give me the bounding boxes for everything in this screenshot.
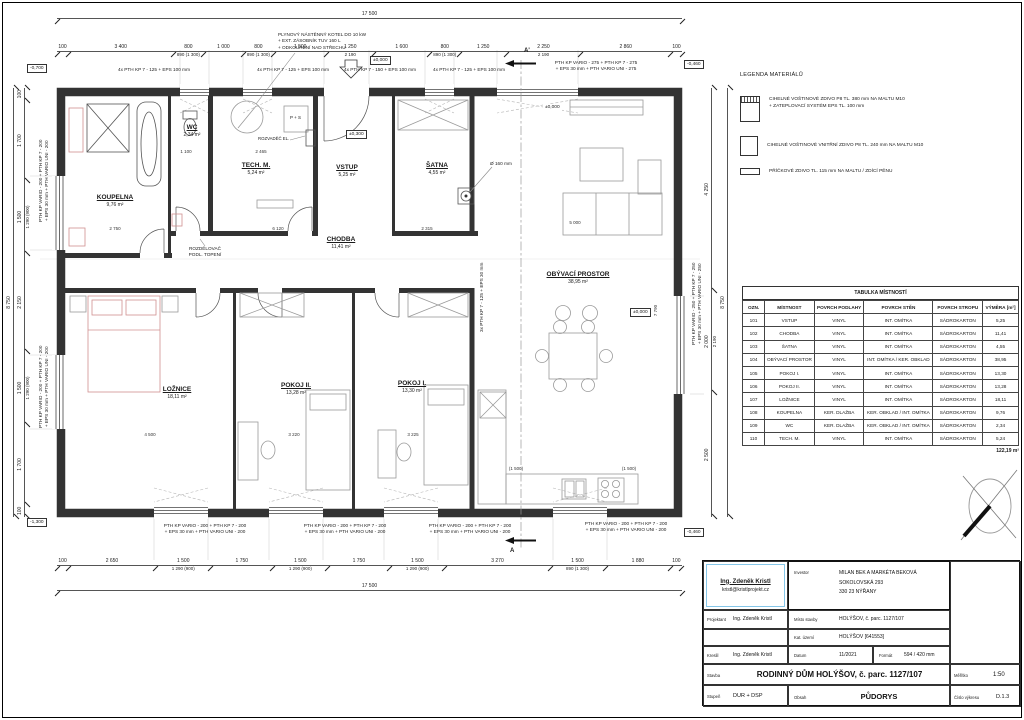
interior-dim: 2 750 — [109, 226, 120, 231]
cislo-vykresu-cell: Číslo výkresu D.1.3 — [950, 685, 1021, 707]
vent-note: Ø 160 mm — [490, 161, 512, 167]
room-table-title: TABULKA MÍSTNOSTÍ — [742, 286, 1019, 300]
room-table-row: 104OBÝVACÍ PROSTORVINYL INT. OMÍTKA / KE… — [743, 353, 1019, 366]
dim-segment: 800890 (1 300) — [430, 43, 460, 52]
wall-note-top-4: 4x PTH KP 7 - 125 + EPS 100 mm — [433, 67, 505, 73]
legend-item: CIHELNÉ VOŠTINOVÉ VNITŘNÍ ZDIVO P8 TL. 2… — [740, 136, 923, 156]
dim-segment: 800890 (1 300) — [243, 43, 273, 52]
dim-segment: 1 5001 290 (900) — [390, 557, 445, 566]
room-table-row: 101VSTUPVINYL INT. OMÍTKASÁDROKARTON5,25 — [743, 314, 1019, 327]
dim-segment: 1 5001 290 (900) — [156, 557, 211, 566]
windows — [56, 90, 684, 514]
room-table-row: 106POKOJ II.VINYL INT. OMÍTKASÁDROKARTON… — [743, 380, 1019, 393]
interior-dim: 3 225 — [407, 432, 418, 437]
top-dimension-total: 17 500 — [57, 10, 682, 19]
room-label-wc: WC2,34 m² — [184, 124, 201, 138]
meritko-cell: Měřítko 1:50 — [950, 664, 1021, 685]
misto-stavby-cell: Místo stavby HOLÝŠOV, č. parc. 1127/107 — [788, 610, 950, 629]
dim-segment: 100 — [57, 43, 68, 52]
room-table-row: 108KOUPELNAKER. DLAŽBA KER. OBKLAD / INT… — [743, 406, 1019, 419]
dim-segment: 1 880 — [605, 557, 671, 566]
stavba-cell: Stavba RODINNÝ DŮM HOLÝŠOV, č. parc. 112… — [703, 664, 950, 685]
left-dimension-row: 100 1 700 1 5001 290 (900) 2 150 1 5001 … — [17, 88, 25, 517]
title-block: Ing. Zdeněk Kristl kristl@kristlprojekt.… — [702, 560, 1020, 706]
dim-segment: 2 650 — [68, 557, 156, 566]
room-table-total: 122,19 m² — [742, 446, 1019, 454]
exterior-wall-symbol — [740, 96, 760, 122]
interior-dim: 2 465 — [255, 149, 266, 154]
extension-lines — [30, 50, 704, 560]
elevation-marker: -0,700 — [27, 64, 47, 73]
ps-label: P + S — [290, 115, 301, 121]
dim-segment: 1 250 — [460, 43, 507, 52]
material-legend: LEGENDA MATERIÁLŮ CIHELNÉ VOŠTINOVÉ ZDIV… — [740, 72, 1018, 78]
room-label-pokoj-ii: POKOJ II.13,28 m² — [281, 382, 311, 396]
dim-segment: 2 2502 190 — [507, 43, 581, 52]
section-label-a: A — [510, 548, 514, 554]
room-table-row: 110TECH. M.VINYL INT. OMÍTKASÁDROKARTON5… — [743, 432, 1019, 445]
room-table-row: 109WCKER. DLAŽBA KER. OBKLAD / INT. OMÍT… — [743, 419, 1019, 432]
interior-dim: 1 100 — [180, 149, 191, 154]
wall-note-interior: 3x PTH KP 7 - 125 + EPS 30 mm — [479, 263, 485, 332]
dim-segment: 2 150 — [16, 253, 25, 351]
stupen-cell: Stupeň DUR + DSP — [703, 685, 788, 707]
partition-wall-symbol — [740, 168, 760, 175]
datum-cell: Datum 11/2021 — [788, 646, 873, 664]
interior-dim: 6 120 — [272, 226, 283, 231]
bathroom-fixtures — [87, 102, 474, 204]
dim-segment: 3 400 — [68, 43, 173, 52]
bottom-dimension-total: 17 500 — [57, 582, 682, 591]
dim-segment: 100 — [671, 557, 682, 566]
legend-item: PŘÍČKOVÉ ZDIVO TL. 115 mm NA MALTU / ZDÍ… — [740, 168, 892, 175]
dim-segment: 100 — [16, 505, 25, 517]
lintel-marks — [154, 99, 607, 502]
dim-segment: 2 500 — [703, 393, 712, 517]
right-dimension-total: 8 750 — [719, 88, 728, 517]
dim-segment: 1 750 — [328, 557, 390, 566]
project-title: RODINNÝ DŮM HOLÝŠOV, č. parc. 1127/107 — [732, 670, 947, 679]
dim-segment: 100 — [57, 557, 68, 566]
empty-cell — [950, 561, 1021, 664]
interior-dim: 5 000 — [569, 220, 580, 225]
dim-segment: 1 700 — [16, 100, 25, 180]
wall-note-bottom-2: PTH KP VARIO - 200 + PTH KP 7 - 200+ EPS… — [304, 523, 386, 536]
dim-segment: 2 860 — [580, 43, 671, 52]
empty-cell — [703, 629, 788, 646]
wall-note-bottom-4: PTH KP VARIO - 200 + PTH KP 7 - 200+ EPS… — [585, 521, 667, 534]
format-cell: Formát 594 / 420 mm — [873, 646, 950, 664]
left-dimension-total: 8 750 — [5, 88, 14, 517]
wall-note-top-right: PTH KP VARIO - 275 + PTH KP 7 - 275+ EPS… — [555, 60, 637, 73]
elevation-marker: -0,460 — [684, 528, 704, 537]
furniture — [70, 100, 662, 504]
wall-note-top-3: 4x PTH KP 7 - 150 + EPS 100 mm — [344, 67, 416, 73]
dim-segment: 1 5001 290 (900) — [16, 181, 25, 253]
room-label-loznice: LOŽNICE18,11 m² — [163, 386, 192, 400]
exterior-walls — [61, 92, 678, 513]
room-table-header: OZN.MÍSTNOST POVRCH PODLAHYPOVRCH STĚN P… — [743, 301, 1019, 314]
room-label-tech-m: TECH. M.5,24 m² — [242, 162, 271, 176]
pink-fixtures — [69, 108, 182, 392]
drawing-title: PŮDORYS — [819, 692, 939, 701]
room-label-koupelna: KOUPELNA9,76 m² — [97, 194, 133, 208]
room-label-satna: ŠATNA4,55 m² — [426, 162, 448, 176]
wall-note-bottom-1: PTH KP VARIO - 200 + PTH KP 7 - 200+ EPS… — [164, 523, 246, 536]
wall-openings — [52, 84, 688, 519]
dim-segment: 1 000 — [204, 43, 244, 52]
wall-note-top-2: 4x PTH KP 7 - 125 + EPS 100 mm — [257, 67, 329, 73]
room-table: TABULKA MÍSTNOSTÍ OZN.MÍSTNOST POVRCH PO… — [742, 286, 1019, 454]
dim-segment: 1 600 — [374, 43, 430, 52]
dim-segment: 1 750 — [211, 557, 273, 566]
rozdelovac-note: ROZDĚLOVAČ PODL. TOPENÍ — [189, 246, 222, 259]
wall-note-left-2: PTH KP VARIO - 200 + PTH KP 7 - 200+ EPS… — [38, 346, 51, 428]
section-label-a-prime: A' — [524, 48, 530, 54]
kreslil-cell: Kreslil Ing. Zdeněk Kristl — [703, 646, 788, 664]
room-label-pokoj-i: POKOJ I.13,30 m² — [398, 380, 426, 394]
elevation-marker: ±0,300 — [346, 130, 367, 139]
designer-cell: Ing. Zdeněk Kristl kristl@kristlprojekt.… — [703, 561, 788, 610]
dim-segment: 1 700 — [16, 424, 25, 504]
designer-name: Ing. Zdeněk Kristl — [720, 579, 770, 585]
room-table-row: 102CHODBAVINYL INT. OMÍTKASÁDROKARTON11,… — [743, 327, 1019, 340]
rozvadec-note: ROZVADĚČ EL. — [258, 136, 289, 142]
boiler-note: PLYNOVÝ NÁSTĚNNÝ KOTEL DO 10 kW + EXT. Z… — [278, 32, 366, 51]
interior-dim: 4 500 — [144, 432, 155, 437]
legend-title: LEGENDA MATERIÁLŮ — [740, 72, 1018, 78]
elevation-marker: ±0,000 — [543, 104, 562, 111]
dim-segment: 1 500890 (1 300) — [550, 557, 605, 566]
elevation-marker: ±0,000 — [370, 56, 391, 65]
projektant-cell: Projektant Ing. Zdeněk Kristl — [703, 610, 788, 629]
top-dimension-row: 100 3 400 800890 (1 300) 1 000 800890 (1… — [57, 44, 682, 52]
designer-email: kristl@kristlprojekt.cz — [722, 587, 769, 593]
dim-segment: 100 — [671, 43, 682, 52]
elevation-marker: ±0,000 — [630, 308, 651, 317]
designer-logo: Ing. Zdeněk Kristl kristl@kristlprojekt.… — [706, 564, 785, 607]
north-arrow-icon — [953, 460, 1024, 552]
wall-note-left-1: PTH KP VARIO - 200 + PTH KP 7 - 200+ EPS… — [38, 140, 51, 222]
room-table-row: 107LOŽNICEVINYL INT. OMÍTKASÁDROKARTON18… — [743, 393, 1019, 406]
floor-plan-drawing — [0, 0, 735, 600]
dim-segment: 2 0002 190 — [703, 291, 712, 393]
section-line — [505, 60, 536, 548]
wall-note-bottom-3: PTH KP VARIO - 200 + PTH KP 7 - 200+ EPS… — [429, 523, 511, 536]
room-label-chodba: CHODBA11,41 m² — [327, 236, 356, 250]
wall-note-right: PTH KP VARIO - 250 + PTH KP 7 - 250+ EPS… — [691, 263, 704, 345]
room-table-row: 103ŠATNAVINYL INT. OMÍTKASÁDROKARTON4,55 — [743, 340, 1019, 353]
kat-uzemi-cell: Kat. území HOLÝŠOV [641553] — [788, 629, 950, 646]
interior-dim: 2 315 — [421, 226, 432, 231]
right-dimension-row: 2 500 2 0002 190 4 250 — [704, 88, 712, 517]
room-label-obyvaci-prostor: OBÝVACÍ PROSTOR38,95 m² — [547, 271, 610, 285]
dim-segment: 1 5001 290 (900) — [16, 352, 25, 424]
interior-dim: 3 220 — [288, 432, 299, 437]
dim-segment: 800890 (1 300) — [173, 43, 203, 52]
investor-cell: Investor MILAN BEK A MARKÉTA BEKOVÁ SOKO… — [788, 561, 950, 610]
dim-segment: 1 5001 290 (900) — [273, 557, 328, 566]
interior-dim: (1 500) — [509, 466, 523, 471]
obsah-cell: Obsah PŮDORYS — [788, 685, 950, 707]
interior-dim: (1 500) — [622, 466, 636, 471]
leader-lines — [200, 53, 492, 246]
legend-item: CIHELNÉ VOŠTINOVÉ ZDIVO P8 TL. 380 mm NA… — [740, 96, 905, 122]
bottom-dimension-row: 100 2 650 1 5001 290 (900) 1 750 1 5001 … — [57, 558, 682, 566]
dim-segment: 3 270 — [445, 557, 550, 566]
room-label-vstup: VSTUP5,25 m² — [336, 164, 358, 178]
elevation-marker: -1,300 — [27, 518, 47, 527]
wall-note-top-1: 4x PTH KP 7 - 125 + EPS 100 mm — [118, 67, 190, 73]
interior-wall-symbol — [740, 136, 758, 156]
elevation-marker: -0,460 — [684, 60, 704, 69]
interior-dim: 7 790 — [653, 305, 658, 316]
dim-segment: 4 250 — [703, 88, 712, 291]
room-table-row: 105POKOJ I.VINYL INT. OMÍTKASÁDROKARTON1… — [743, 366, 1019, 379]
